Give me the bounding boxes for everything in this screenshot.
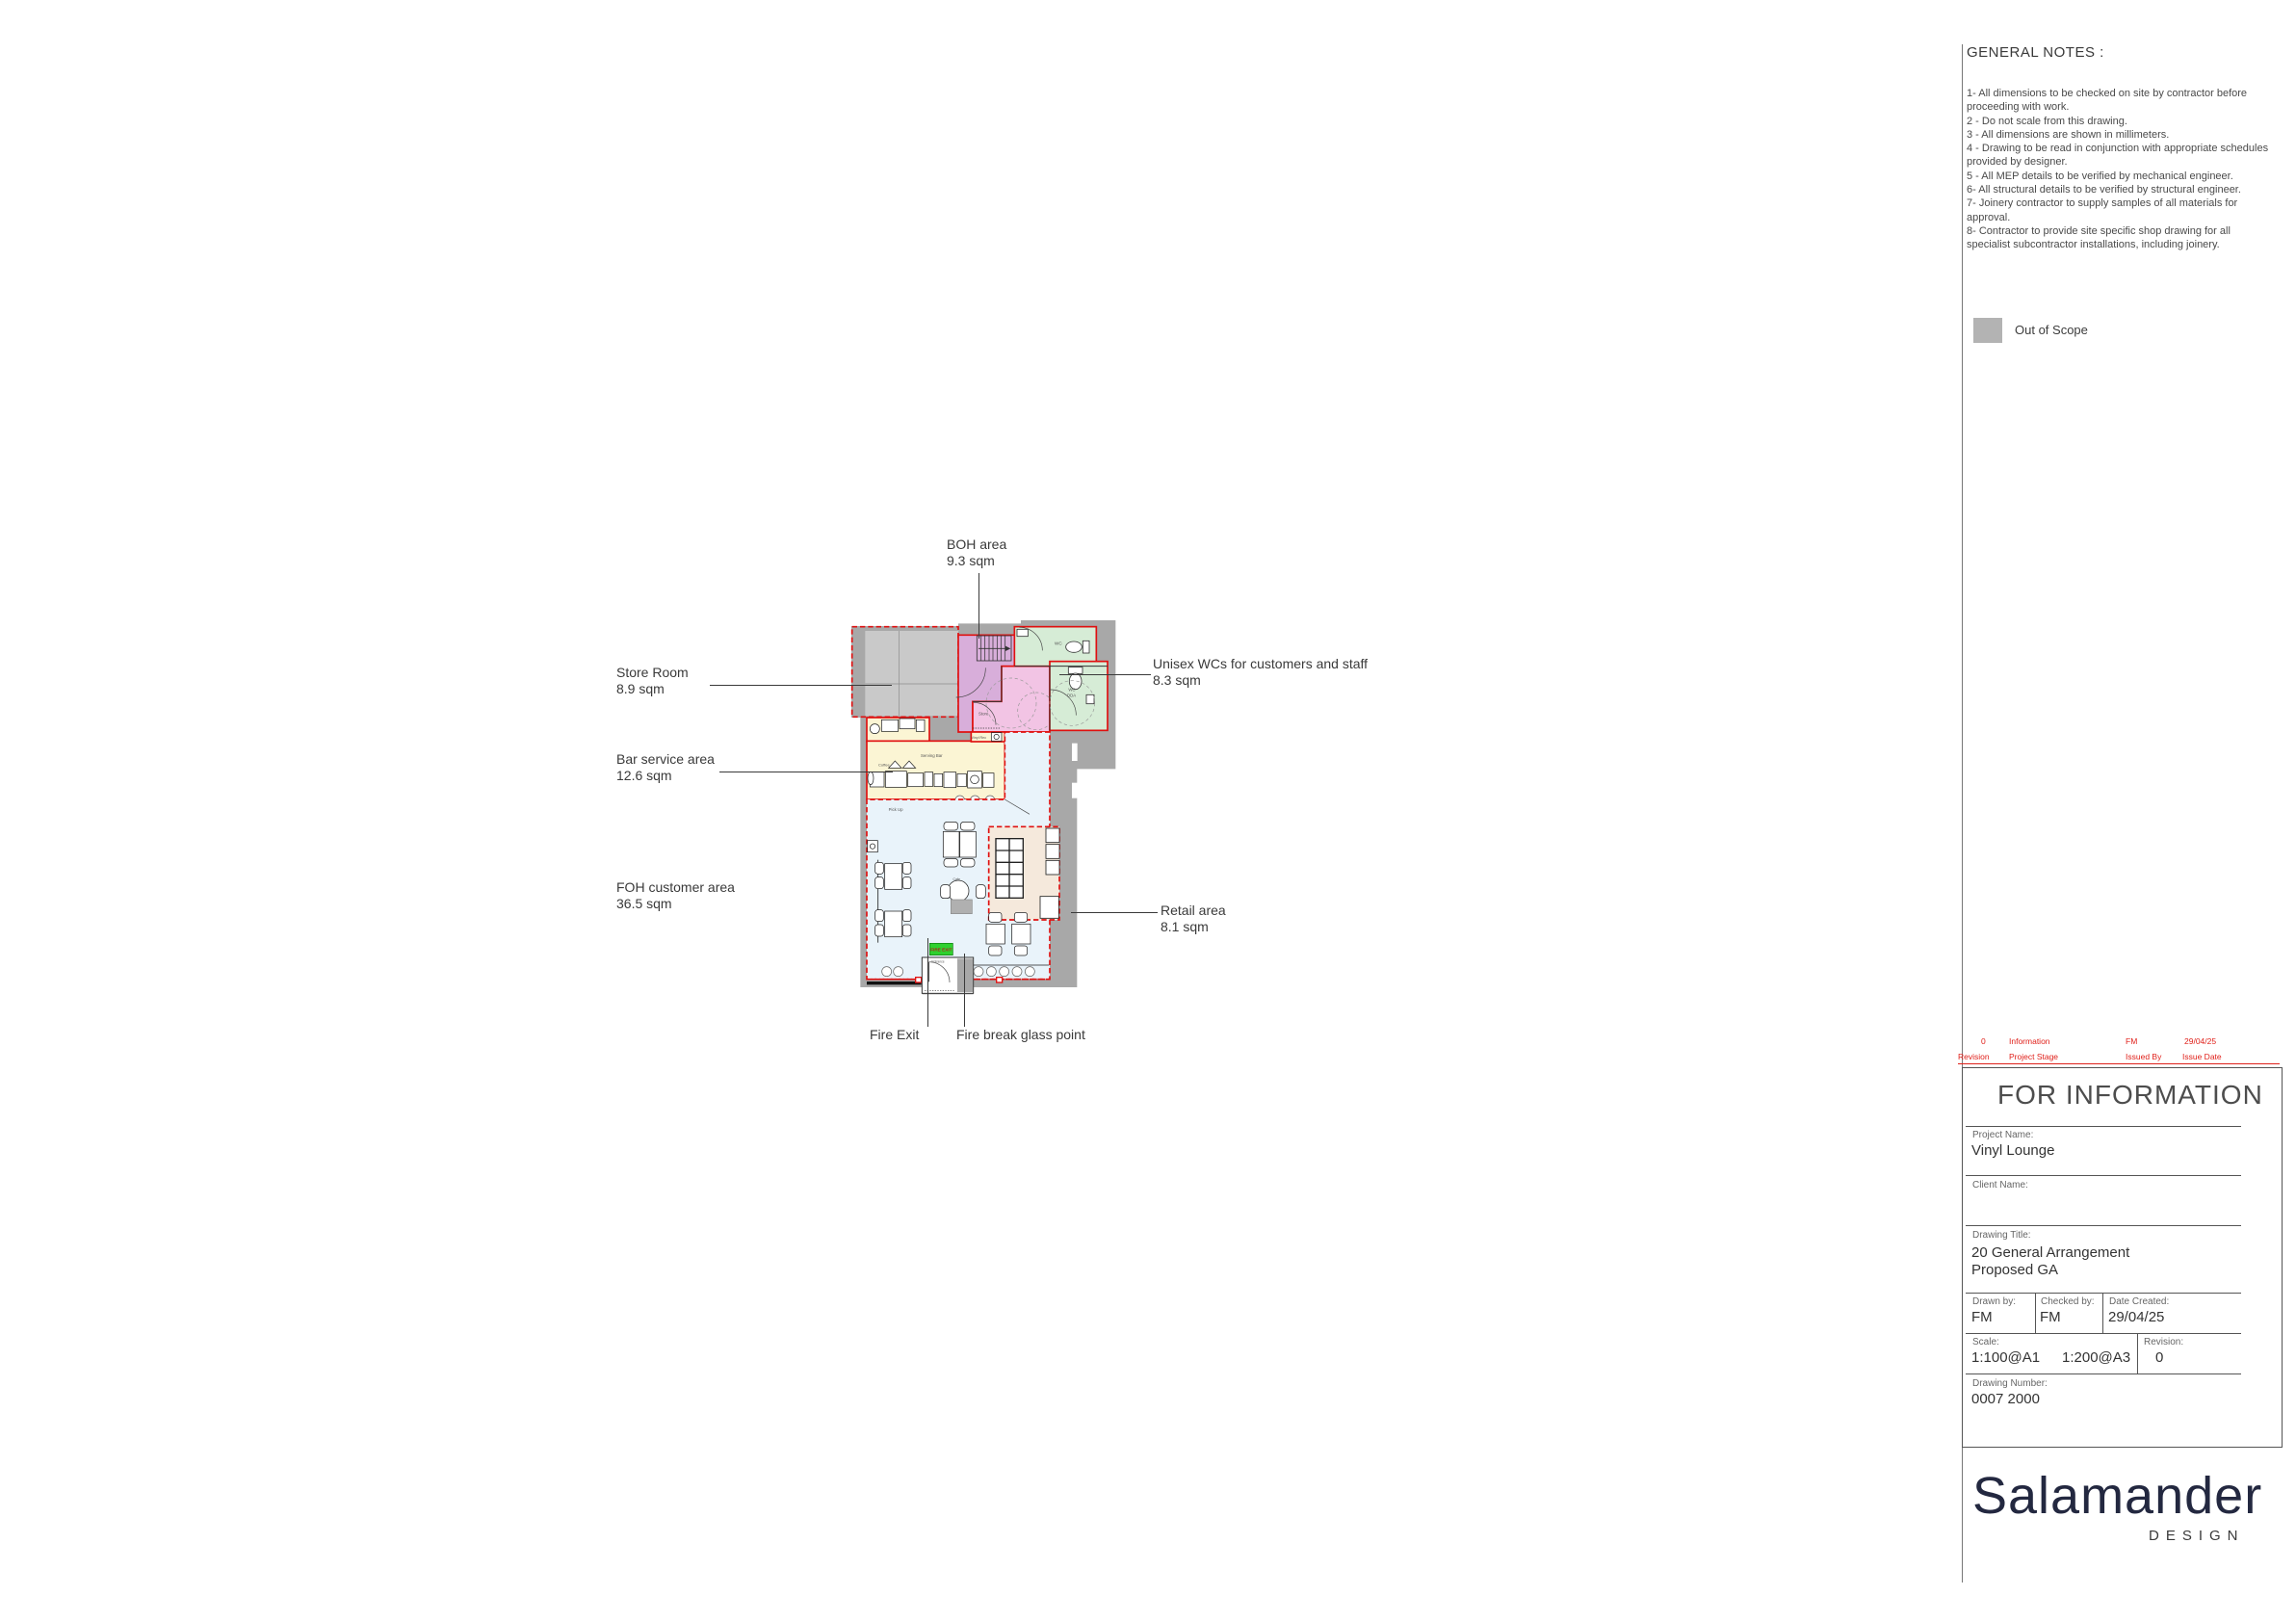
annotation-bar-service: Bar service area12.6 sqm [616,751,715,783]
staircase [977,636,1011,661]
out-of-scope-swatch [1973,318,2002,343]
issue-date-value: 29/04/25 [2184,1036,2216,1046]
retail-shelving [996,839,1023,899]
leader-line-retail [1071,912,1158,913]
scale-label: Scale: [1972,1337,1999,1347]
client-name-label: Client Name: [1972,1180,2028,1190]
drawing-number: 0007 2000 [1971,1391,2040,1407]
serving-bar-label: Serving Bar [921,753,943,758]
floor-plan: Store WC WC DDA [848,607,1136,1011]
annotation-boh: BOH area9.3 sqm [947,536,1006,568]
checked-by-label: Checked by: [2041,1296,2095,1307]
general-notes-title: GENERAL NOTES : [1967,44,2104,61]
drawn-by-label: Drawn by: [1972,1296,2016,1307]
company-logo-subtitle: DESIGN [2149,1528,2245,1544]
scale-a3: 1:200@A3 [2062,1349,2130,1366]
revision-number: 0 [2155,1349,2163,1366]
issued-by-value: FM [2126,1036,2137,1046]
store-room-label: Store [978,712,989,717]
note-line: 8- Contractor to provide site specific s… [1967,224,2277,252]
pick-up-label: Pick Up [889,807,904,812]
drawing-status: FOR INFORMATION [1997,1080,2263,1111]
sink-icon [1086,694,1094,703]
leader-line-fire-break [964,954,965,1027]
project-stage-value: Information [2009,1036,2050,1046]
project-name-label: Project Name: [1972,1130,2033,1140]
issue-date-header: Issue Date [2182,1052,2222,1061]
service-station [951,900,972,914]
drawing-sheet: { "notes_panel": { "title": "GENERAL NOT… [0,0,2296,1622]
wc-dda-label-2: DDA [1067,693,1076,697]
entrance-label: Entrance [931,959,944,963]
note-line: 5 - All MEP details to be verified by me… [1967,170,2277,183]
drawing-title-label: Drawing Title: [1972,1230,2031,1241]
note-line: 4 - Drawing to be read in conjunction wi… [1967,142,2277,170]
out-of-scope-rooms [852,627,958,718]
note-line: 7- Joinery contractor to supply samples … [1967,196,2277,224]
project-stage-header: Project Stage [2009,1052,2058,1061]
annotation-retail: Retail area8.1 sqm [1161,903,1226,934]
note-line: 3 - All dimensions are shown in millimet… [1967,128,2277,142]
wc-label: WC [1055,641,1062,645]
coffee-label: Coffee [878,762,890,767]
annotation-store-room: Store Room8.9 sqm [616,665,689,696]
toilet-dda-icon [1068,667,1083,690]
revision-strip-underline [1958,1063,2280,1064]
revision-header: Revision [1958,1052,1990,1061]
note-line: 6- All structural details to be verified… [1967,183,2277,196]
cafe-label: Cafe [952,877,960,881]
leader-line-boh [978,573,979,639]
wc-dda-label-1: WC [1068,687,1075,692]
svg-text:FIRE EXIT: FIRE EXIT [930,947,952,952]
date-created: 29/04/25 [2108,1309,2164,1325]
leader-line-fire-exit [927,938,928,1027]
fire-exit-sign: FIRE EXIT [929,943,952,955]
general-notes-body: 1- All dimensions to be checked on site … [1967,87,2277,252]
drawing-title-line1: 20 General Arrangement [1971,1244,2129,1261]
scale-a1: 1:100@A1 [1971,1349,2040,1366]
toilet-icon [1066,641,1089,653]
annotation-foh: FOH customer area36.5 sqm [616,879,735,911]
title-block: FOR INFORMATION Project Name: Vinyl Loun… [1962,1067,2283,1448]
annotation-unisex-wcs: Unisex WCs for customers and staff8.3 sq… [1153,656,1368,688]
annotation-fire-exit: Fire Exit [870,1027,919,1043]
drawn-by: FM [1971,1309,1993,1325]
revision-label: Revision: [2144,1337,2183,1347]
window-slit [1072,744,1078,761]
company-logo: Salamander [1972,1466,2262,1526]
vinyl-label: Vinyl Rec [972,736,987,740]
leader-line-bar-service [719,772,893,772]
drawing-number-label: Drawing Number: [1972,1378,2048,1389]
checked-by: FM [2040,1309,2061,1325]
note-line: 2 - Do not scale from this drawing. [1967,115,2277,128]
leader-line-unisex-wcs [1059,674,1151,675]
revision-value: 0 [1981,1036,1986,1046]
drawing-title-line2: Proposed GA [1971,1262,2058,1278]
annotation-fire-break: Fire break glass point [956,1027,1085,1043]
window-slit [1072,783,1078,798]
note-line: 1- All dimensions to be checked on site … [1967,87,2277,115]
issued-by-header: Issued By [2126,1052,2161,1061]
project-name: Vinyl Lounge [1971,1142,2054,1159]
date-created-label: Date Created: [2109,1296,2169,1307]
out-of-scope-label: Out of Scope [2015,323,2088,337]
basin-icon [1017,629,1028,636]
leader-line-store-room [710,685,892,686]
fire-break-block [957,958,973,992]
